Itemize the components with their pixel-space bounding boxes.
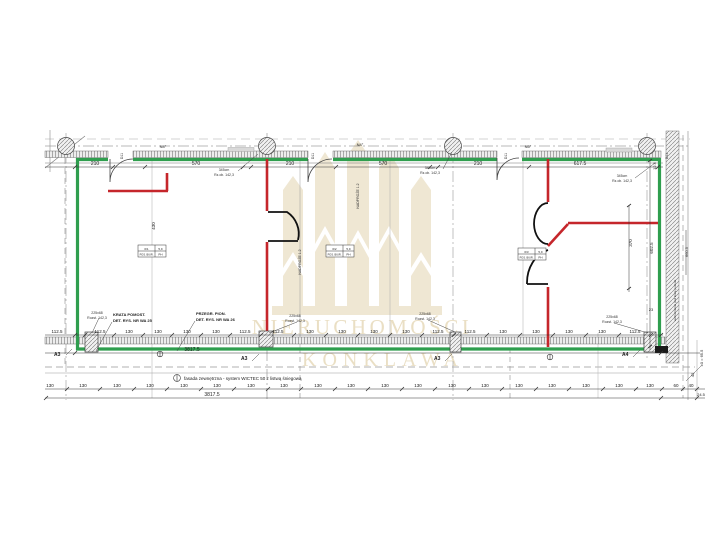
wall-tag: D11 <box>665 153 669 159</box>
column-tag: 225x68 <box>606 315 618 319</box>
dim-label: 130 <box>306 329 314 334</box>
dim-label: 130 <box>180 383 188 388</box>
dim-label: 130 <box>125 329 133 334</box>
dim-label: 130 <box>338 329 346 334</box>
room-type: PH <box>346 253 350 257</box>
beam-tag: Rz.ob. 142,3 <box>420 171 440 175</box>
beam-tag: 345cm <box>425 166 436 170</box>
dim-label: 112.5 <box>95 329 106 334</box>
annotation-krata-2: DET. RYS. NR WA 25 <box>113 318 153 323</box>
column-tag: Rozst. 142,3 <box>285 319 305 323</box>
dim-label: 112.5 <box>52 329 63 334</box>
room-number: 0/1 <box>144 247 149 251</box>
dim-label: 602.5 <box>649 242 654 254</box>
lintel-tag: NADPROŻE 1.2 <box>355 183 360 208</box>
dim-label: 130 <box>448 383 456 388</box>
dim-label: 130 <box>402 329 410 334</box>
dim-label: 12.5 <box>652 161 657 170</box>
room-tag-table: 0/1 5,9 POS. BIUR. PH <box>138 245 166 257</box>
dim-label: 112.5 <box>433 329 444 334</box>
dim-label: 130 <box>183 329 191 334</box>
dim-label: 130 <box>79 383 87 388</box>
level-marker: 42 <box>690 372 695 377</box>
beam-tag: 345cm <box>617 174 628 178</box>
wall-tag: D11 <box>120 153 124 159</box>
dim-label: 210 <box>474 161 483 167</box>
dim-label: 370 <box>628 239 633 247</box>
dim-label: 60 <box>673 383 679 388</box>
room-type: PH <box>538 256 542 260</box>
dim-label: 112.5 <box>465 329 476 334</box>
room-area: 5,9 <box>346 247 351 251</box>
column-tag: Rozst. 142,3 <box>87 316 107 320</box>
room-area: 5,9 <box>158 247 163 251</box>
dim-labels-row2: 130 130 130 130 130 130 130 130 130 130 … <box>46 383 705 398</box>
room-tags: 0/1 5,9 POS. BIUR. PH 0/2 5,9 POS. BIUR.… <box>138 245 546 260</box>
dim-label: 40 <box>688 383 694 388</box>
dim-label: 130 <box>46 383 54 388</box>
dim-label: 130 <box>381 383 389 388</box>
dim-label: 130 <box>213 383 221 388</box>
grid-tag: N4° <box>160 144 167 149</box>
dim-label: 130 <box>247 383 255 388</box>
dim-label: 130 <box>582 383 590 388</box>
beam-tag: Rz.ob. 142,3 <box>612 179 632 183</box>
dim-label: 210 <box>91 161 100 167</box>
dim-label: 210 <box>286 161 295 167</box>
grid-tag: N4° <box>357 142 364 147</box>
dim-label: 112.5 <box>240 329 251 334</box>
room-number: 0/2 <box>332 247 337 251</box>
wall-tag: D11 <box>311 153 315 159</box>
dim-label: 130 <box>280 383 288 388</box>
dim-label: 130 <box>532 329 540 334</box>
dim-label: 130 <box>515 383 523 388</box>
dim-label: 130 <box>146 383 154 388</box>
column-tag: 225x68 <box>419 312 431 316</box>
column-tag: Rozst. 142,3 <box>415 317 435 321</box>
annotation-przegr-1: PRZEGR. PION. <box>196 311 226 316</box>
dim-label: 130 <box>548 383 556 388</box>
annotation-przegr-2: DET. RYS. NR WA 26 <box>196 317 236 322</box>
column-tag: Rozst. 142,3 <box>602 320 622 324</box>
annotation-fasada: fasada zewnętrzna - system WICTEC 50 z l… <box>184 376 302 381</box>
level-marker: ±0 = 65.5 <box>699 349 704 367</box>
section-marker-a3: A3 <box>54 352 61 358</box>
dim-label: 130 <box>481 383 489 388</box>
dim-label: 130 <box>347 383 355 388</box>
floor-plan-page: NIERUCHOMOŚCI KONKLAWA <box>0 0 720 540</box>
column-tag: 225x68 <box>91 311 103 315</box>
dim-label: 23 <box>649 307 654 312</box>
dim-label: 112.5 <box>630 329 641 334</box>
dim-total: 3817.5 <box>204 392 220 398</box>
wall-tag: D11 <box>504 153 508 159</box>
dim-label: 130 <box>615 383 623 388</box>
section-marker-a4: A4 <box>622 352 629 358</box>
room-type: PH <box>158 253 162 257</box>
dim-label: 130 <box>414 383 422 388</box>
room-tag-table: 0/3 5,9 POS. BIUR. PH <box>518 248 546 260</box>
dim-label: 617.5 <box>574 161 587 167</box>
section-marker-a3: A3 <box>434 356 441 362</box>
section-marker-a3: A3 <box>241 356 248 362</box>
dim-label: 130 <box>212 329 220 334</box>
column-tag: 225x68 <box>289 314 301 318</box>
grid-tag: N5° <box>525 144 532 149</box>
dim-label: 130 <box>113 383 121 388</box>
room-number: 0/3 <box>524 250 529 254</box>
annotation-krata-1: KRATA POMOST. <box>113 312 145 317</box>
dim-label: 430 <box>151 222 156 230</box>
room-name: POS. BIUR. <box>520 256 534 260</box>
dim-label: 130 <box>154 329 162 334</box>
reinforcement-note: wzmocnienie pod kratę pomost. <box>673 279 677 321</box>
dim-label: 130 <box>565 329 573 334</box>
dim-label: 130 <box>314 383 322 388</box>
dim-label: 570 <box>379 161 388 167</box>
dim-total: 3817.5 <box>184 347 200 353</box>
dim-labels-top: 210 570 210 570 210 617.5 12.5 <box>91 161 657 170</box>
floor-plan-drawing: NIERUCHOMOŚCI KONKLAWA <box>0 0 720 540</box>
dim-label: 660.5 <box>684 246 689 257</box>
room-area: 5,9 <box>538 250 543 254</box>
room-tag-table: 0/2 5,9 POS. BIUR. PH <box>326 245 354 257</box>
dim-label: 130 <box>598 329 606 334</box>
beam-tag: 345cm <box>219 168 230 172</box>
room-name: POS. BIUR. <box>328 253 342 257</box>
dim-label: 130 <box>370 329 378 334</box>
dim-label: 24.5 <box>697 392 706 397</box>
beam-tag: Rz.ob. 142,3 <box>214 173 234 177</box>
dim-label: 130 <box>646 383 654 388</box>
dim-label: 570 <box>192 161 201 167</box>
room-name: POS. BIUR. <box>140 253 154 257</box>
dim-label: 112.5 <box>273 329 284 334</box>
dim-label: 130 <box>499 329 507 334</box>
lintel-tag: NADPROŻE 1.2 <box>297 249 302 274</box>
